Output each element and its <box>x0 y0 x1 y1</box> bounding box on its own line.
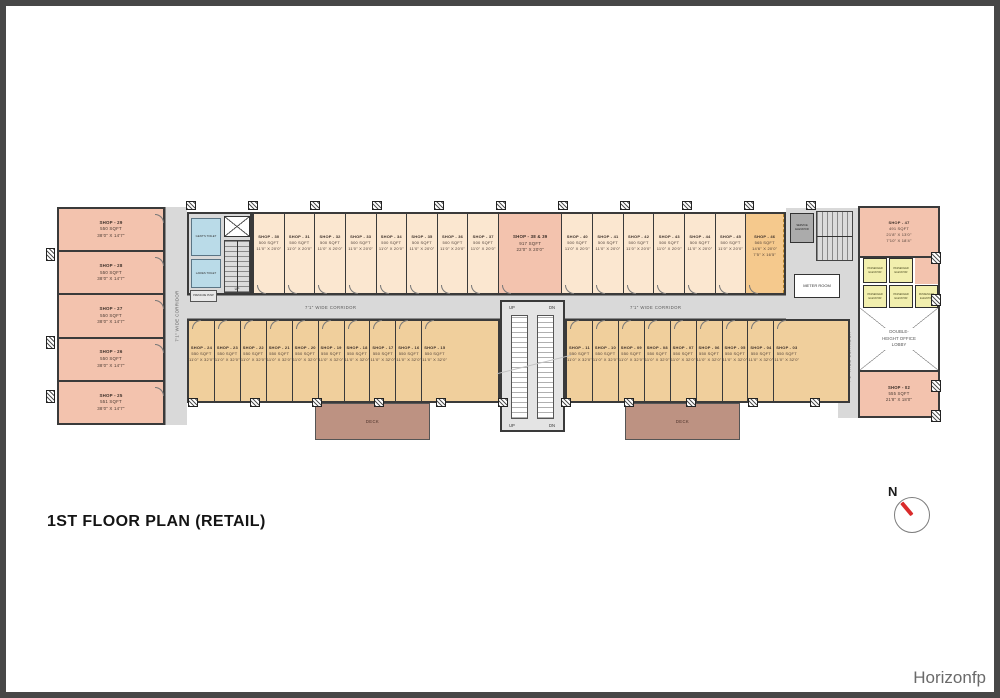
shop-label: SHOP - 07 550 SQFT 11'0" X 32'0" <box>671 345 696 363</box>
shop-label: SHOP - 42 500 SQFT 11'0" X 20'0" <box>626 234 651 252</box>
shop-unit: SHOP - 25 551 SQFT 38'0" X 14'7" <box>59 380 163 423</box>
door-arc <box>296 320 305 329</box>
shop-unit: SHOP - 15 550 SQFT 11'0" X 32'0" <box>421 321 447 401</box>
shop-label: SHOP - 41 500 SQFT 11'0" X 20'0" <box>595 234 620 252</box>
column-marker <box>931 294 941 306</box>
shop-unit: SHOP - 30 500 SQFT 11'0" X 20'0" <box>254 214 284 293</box>
shop-unit: SHOP - 09 550 SQFT 11'0" X 32'0" <box>618 321 644 401</box>
column-marker <box>434 201 444 210</box>
shop-label: SHOP - 05 550 SQFT 11'0" X 32'0" <box>723 345 748 363</box>
shop-label: SHOP - 25 551 SQFT 38'0" X 14'7" <box>97 393 124 413</box>
door-arc <box>441 285 450 294</box>
elevator-shaft <box>224 216 250 237</box>
column-marker <box>46 336 55 349</box>
door-arc <box>373 320 382 329</box>
door-arc <box>627 285 636 294</box>
door-arc <box>192 320 201 329</box>
shop-unit: SHOP - 23 550 SQFT 11'0" X 32'0" <box>214 321 240 401</box>
passenger-elevator: PASSENGER ELEVATOR <box>863 258 887 283</box>
column-marker <box>620 201 630 210</box>
shop-label: SHOP - 38 & 39 917 SQFT 22'0" X 20'0" <box>513 234 547 254</box>
door-arc <box>749 285 758 294</box>
shop-unit: SHOP - 40 500 SQFT 11'0" X 20'0" <box>562 214 592 293</box>
column-marker <box>312 398 322 407</box>
shop-38-39: SHOP - 38 & 39 917 SQFT 22'0" X 20'0" <box>498 214 562 293</box>
shop-label: SHOP - 09 550 SQFT 11'0" X 32'0" <box>619 345 644 363</box>
gents-toilet: GENT'S TOILET <box>191 218 221 256</box>
shop-label: SHOP - 43 500 SQFT 11'0" X 20'0" <box>657 234 682 252</box>
column-marker <box>931 252 941 264</box>
shop-label: SHOP - 36 500 SQFT 11'0" X 20'0" <box>440 234 465 252</box>
shop-unit: SHOP - 17 550 SQFT 11'0" X 32'0" <box>369 321 395 401</box>
shop-unit: SHOP - 11 550 SQFT 11'0" X 32'0" <box>567 321 592 401</box>
shop-label: SHOP - 20 550 SQFT 11'0" X 32'0" <box>293 345 318 363</box>
door-arc <box>380 285 389 294</box>
door-arc <box>648 320 657 329</box>
door-arc <box>244 320 253 329</box>
shop-unit: SHOP - 22 550 SQFT 11'0" X 32'0" <box>240 321 266 401</box>
door-arc <box>471 285 480 294</box>
door-arc <box>596 320 605 329</box>
column-marker <box>46 390 55 403</box>
shop-label: SHOP - 45 500 SQFT 11'0" X 20'0" <box>718 234 743 252</box>
right-block: SHOP - 47 491 SQFT 21'8" X 13'0" 7'10" X… <box>858 206 940 418</box>
shop-unit: SHOP - 03 550 SQFT 11'0" X 32'0" <box>773 321 799 401</box>
column-marker <box>250 398 260 407</box>
passenger-elevator: PASSENGER ELEVATOR <box>863 285 887 308</box>
service-core: GENT'S TOILET LADIES TOILET PRESSURE PUM… <box>187 212 252 295</box>
shop-label: SHOP - 10 550 SQFT 11'0" X 32'0" <box>593 345 618 363</box>
bottom-shop-row-right: SHOP - 11 550 SQFT 11'0" X 32'0" SHOP - … <box>565 319 850 403</box>
shop-unit: SHOP - 06 550 SQFT 11'0" X 32'0" <box>696 321 722 401</box>
top-shops-a: SHOP - 30 500 SQFT 11'0" X 20'0" SHOP - … <box>254 214 498 293</box>
column-marker <box>188 398 198 407</box>
door-arc <box>399 320 408 329</box>
column-marker <box>558 201 568 210</box>
column-marker <box>186 201 196 210</box>
ladies-toilet: LADIES TOILET <box>191 259 221 288</box>
shop-label: SHOP - 44 500 SQFT 11'0" X 20'0" <box>687 234 712 252</box>
service-elevator: SERVICE ELEVATOR <box>790 213 814 243</box>
shop-label: SHOP - 29 550 SQFT 38'0" X 14'7" <box>97 220 124 240</box>
shop-unit: SHOP - 18 550 SQFT 11'0" X 32'0" <box>344 321 370 401</box>
page-title: 1ST FLOOR PLAN (RETAIL) <box>47 513 266 531</box>
shop-label: SHOP - 34 500 SQFT 11'0" X 20'0" <box>379 234 404 252</box>
shop-label: SHOP - 46 565 SQFT 14'6" X 20'0" 7'5" X … <box>752 234 777 258</box>
escalator-break-line <box>497 355 571 374</box>
passenger-elevator: PASSENGER ELEVATOR <box>889 285 913 308</box>
door-arc <box>155 344 164 353</box>
door-arc <box>502 285 511 294</box>
shop-unit: SHOP - 19 550 SQFT 11'0" X 32'0" <box>318 321 344 401</box>
column-marker <box>496 201 506 210</box>
shop-unit: SHOP - 33 500 SQFT 11'0" X 20'0" <box>345 214 376 293</box>
floor-plan: SHOP - 29 550 SQFT 38'0" X 14'7" SHOP - … <box>0 0 1000 698</box>
shop-label: SHOP - 18 550 SQFT 11'0" X 32'0" <box>345 345 370 363</box>
meter-room: METER ROOM <box>794 274 840 298</box>
column-marker <box>931 380 941 392</box>
door-arc <box>700 320 709 329</box>
column-marker <box>682 201 692 210</box>
shop-unit: SHOP - 28 550 SQFT 38'0" X 14'7" <box>59 250 163 293</box>
door-arc <box>270 320 279 329</box>
shop-47: SHOP - 47 491 SQFT 21'8" X 13'0" 7'10" X… <box>860 208 938 258</box>
north-needle-icon <box>900 501 913 516</box>
shop-label: SHOP - 16 550 SQFT 11'0" X 32'0" <box>396 345 421 363</box>
shop-label: SHOP - 02 555 SQFT 21'8" X 18'0" <box>886 385 912 404</box>
shop-label: SHOP - 06 550 SQFT 11'0" X 32'0" <box>697 345 722 363</box>
shop-unit: SHOP - 37 500 SQFT 11'0" X 20'0" <box>467 214 498 293</box>
shop-unit: SHOP - 43 500 SQFT 11'0" X 20'0" <box>653 214 684 293</box>
door-arc <box>719 285 728 294</box>
door-arc <box>688 285 697 294</box>
corridor-label: 7'1" WIDE CORRIDOR <box>630 305 681 310</box>
shop-unit: SHOP - 10 550 SQFT 11'0" X 32'0" <box>592 321 618 401</box>
door-arc <box>596 285 605 294</box>
door-arc <box>726 320 735 329</box>
shop-label: SHOP - 22 550 SQFT 11'0" X 32'0" <box>241 345 266 363</box>
column-marker <box>310 201 320 210</box>
shop-unit: SHOP - 35 500 SQFT 11'0" X 20'0" <box>406 214 437 293</box>
door-arc <box>348 320 357 329</box>
door-arc <box>155 257 164 266</box>
shop-label: SHOP - 31 500 SQFT 11'0" X 20'0" <box>287 234 312 252</box>
shop-unit: SHOP - 21 550 SQFT 11'0" X 32'0" <box>266 321 292 401</box>
door-arc <box>257 285 266 294</box>
corridor-label: 7'1" WIDE CORRIDOR <box>174 290 179 341</box>
shop-unit: SHOP - 44 500 SQFT 11'0" X 20'0" <box>684 214 715 293</box>
column-marker <box>436 398 446 407</box>
shop-unit: SHOP - 27 550 SQFT 38'0" X 14'7" <box>59 293 163 336</box>
door-arc <box>288 285 297 294</box>
door-arc <box>218 320 227 329</box>
shop-label: SHOP - 15 550 SQFT 11'0" X 32'0" <box>422 345 447 363</box>
bottom-shop-row-left: SHOP - 24 550 SQFT 11'0" X 32'0" SHOP - … <box>187 319 500 403</box>
door-arc <box>751 320 760 329</box>
shop-unit: SHOP - 29 550 SQFT 38'0" X 14'7" <box>59 209 163 250</box>
shop-46: SHOP - 46 565 SQFT 14'6" X 20'0" 7'5" X … <box>745 214 784 293</box>
shop-unit: SHOP - 26 550 SQFT 38'0" X 14'7" <box>59 337 163 380</box>
column-marker <box>744 201 754 210</box>
top-shops-b: SHOP - 40 500 SQFT 11'0" X 20'0" SHOP - … <box>561 214 745 293</box>
column-marker <box>624 398 634 407</box>
shop-unit: SHOP - 32 500 SQFT 11'0" X 20'0" <box>314 214 345 293</box>
shop-label: SHOP - 27 550 SQFT 38'0" X 14'7" <box>97 306 124 326</box>
column-marker <box>372 201 382 210</box>
shop-label: SHOP - 23 550 SQFT 11'0" X 32'0" <box>215 345 240 363</box>
shop-label: SHOP - 33 500 SQFT 11'0" X 20'0" <box>348 234 373 252</box>
door-arc <box>565 285 574 294</box>
staircase: UP <box>224 240 250 293</box>
shop-unit: SHOP - 31 500 SQFT 11'0" X 20'0" <box>284 214 315 293</box>
shop-label: SHOP - 37 500 SQFT 11'0" X 20'0" <box>471 234 496 252</box>
column-marker <box>561 398 571 407</box>
door-arc <box>674 320 683 329</box>
shop-unit: SHOP - 05 550 SQFT 11'0" X 32'0" <box>722 321 748 401</box>
shop-unit: SHOP - 45 500 SQFT 11'0" X 20'0" <box>715 214 746 293</box>
door-arc <box>622 320 631 329</box>
shop-unit: SHOP - 20 550 SQFT 11'0" X 32'0" <box>292 321 318 401</box>
passenger-elevator: PASSENGER ELEVATOR <box>889 258 913 283</box>
staircase-right <box>816 211 853 261</box>
shop-02: SHOP - 02 555 SQFT 21'8" X 18'0" <box>860 370 938 416</box>
column-marker <box>498 398 508 407</box>
office-lobby: DOUBLE-HEIGHT OFFICE LOBBY <box>860 308 938 370</box>
door-arc <box>777 320 786 329</box>
corridor-label: 7'1" WIDE CORRIDOR <box>305 305 356 310</box>
column-marker <box>931 410 941 422</box>
shop-label: SHOP - 19 550 SQFT 11'0" X 32'0" <box>319 345 344 363</box>
shop-label: SHOP - 28 550 SQFT 38'0" X 14'7" <box>97 263 124 283</box>
corridor-left: 7'1" WIDE CORRIDOR <box>165 207 187 425</box>
shop-label: SHOP - 03 550 SQFT 11'0" X 32'0" <box>774 345 799 363</box>
column-marker <box>374 398 384 407</box>
door-arc <box>155 300 164 309</box>
column-marker <box>248 201 258 210</box>
shop-label: SHOP - 35 500 SQFT 11'0" X 20'0" <box>409 234 434 252</box>
shop-label: SHOP - 04 550 SQFT 11'0" X 32'0" <box>748 345 773 363</box>
shop-label: SHOP - 30 500 SQFT 11'0" X 20'0" <box>256 234 281 252</box>
column-marker <box>806 201 816 210</box>
escalator-down <box>537 315 554 419</box>
door-arc <box>155 387 164 396</box>
door-arc <box>322 320 331 329</box>
door-arc <box>657 285 666 294</box>
shop-label: SHOP - 40 500 SQFT 11'0" X 20'0" <box>565 234 590 252</box>
north-label: N <box>888 484 897 499</box>
shop-unit: SHOP - 34 500 SQFT 11'0" X 20'0" <box>376 214 407 293</box>
shop-unit: SHOP - 16 550 SQFT 11'0" X 32'0" <box>395 321 421 401</box>
shop-unit: SHOP - 24 550 SQFT 11'0" X 32'0" <box>189 321 214 401</box>
pump-room: PRESSURE PUMP <box>190 290 217 302</box>
door-arc <box>410 285 419 294</box>
left-wing-shops: SHOP - 29 550 SQFT 38'0" X 14'7" SHOP - … <box>57 207 165 425</box>
watermark: Horizonfp <box>913 668 986 688</box>
shop-unit: SHOP - 42 500 SQFT 11'0" X 20'0" <box>623 214 654 293</box>
deck-left: DECK <box>315 403 430 440</box>
deck-right: DECK <box>625 403 740 440</box>
column-marker <box>686 398 696 407</box>
shop-label: SHOP - 17 550 SQFT 11'0" X 32'0" <box>370 345 395 363</box>
shop-label: SHOP - 26 550 SQFT 38'0" X 14'7" <box>97 349 124 369</box>
door-arc <box>570 320 579 329</box>
door-arc <box>425 320 434 329</box>
shop-label: SHOP - 08 550 SQFT 11'0" X 32'0" <box>645 345 670 363</box>
column-marker <box>810 398 820 407</box>
shop-unit: SHOP - 41 500 SQFT 11'0" X 20'0" <box>592 214 623 293</box>
shop-label: SHOP - 47 491 SQFT 21'8" X 13'0" 7'10" X… <box>886 220 911 244</box>
door-arc <box>155 214 164 223</box>
shop-unit: SHOP - 07 550 SQFT 11'0" X 32'0" <box>670 321 696 401</box>
north-arrow: N <box>884 484 934 536</box>
door-arc <box>318 285 327 294</box>
shop-unit: SHOP - 04 550 SQFT 11'0" X 32'0" <box>747 321 773 401</box>
shop-label: SHOP - 24 550 SQFT 11'0" X 32'0" <box>189 345 214 363</box>
north-compass-circle <box>894 497 930 533</box>
shop-unit: SHOP - 08 550 SQFT 11'0" X 32'0" <box>644 321 670 401</box>
shop-label: SHOP - 32 500 SQFT 11'0" X 20'0" <box>318 234 343 252</box>
column-marker <box>748 398 758 407</box>
column-marker <box>46 248 55 261</box>
top-shop-row: SHOP - 30 500 SQFT 11'0" X 20'0" SHOP - … <box>252 212 786 295</box>
shop-unit: SHOP - 36 500 SQFT 11'0" X 20'0" <box>437 214 468 293</box>
door-arc <box>349 285 358 294</box>
shop-label: SHOP - 21 550 SQFT 11'0" X 32'0" <box>267 345 292 363</box>
escalator-block: UP DN UP DN <box>500 300 565 432</box>
